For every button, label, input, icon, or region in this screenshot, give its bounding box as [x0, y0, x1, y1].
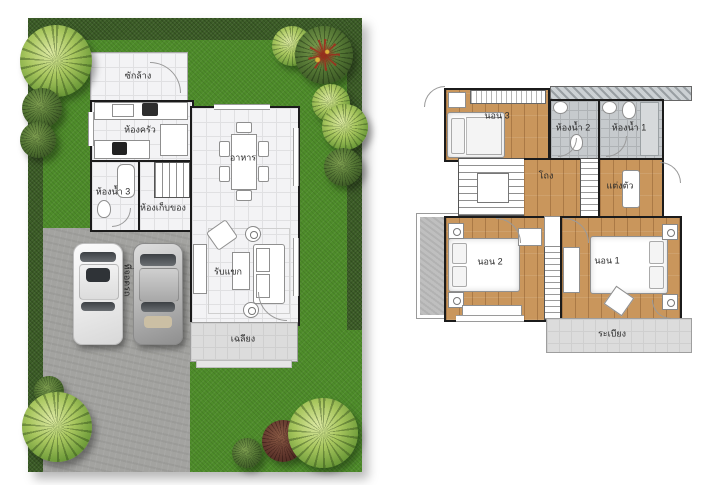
label-laundry: ซักล้าง: [125, 72, 152, 81]
sink: [602, 101, 617, 114]
porch-step: [196, 360, 292, 368]
label-storage: ห้องเก็บของ: [140, 204, 186, 213]
label-balcony: ระเบียง: [598, 330, 626, 339]
label-bed1: นอน 1: [594, 257, 619, 266]
sink: [553, 101, 568, 114]
side-table: [448, 92, 466, 108]
refrigerator: [160, 124, 188, 156]
staircase: [154, 162, 190, 198]
tv-cabinet: [193, 244, 207, 294]
door-arc: [424, 86, 445, 107]
chair: [236, 190, 252, 201]
chair: [219, 141, 230, 157]
tree: [324, 148, 362, 186]
tree: [322, 104, 368, 150]
label-hall: โถง: [539, 172, 554, 181]
label-bath2: ห้องน้ำ 2: [556, 124, 590, 133]
sofa-cushion: [256, 248, 270, 272]
toilet: [622, 101, 636, 119]
linen-closet: [580, 158, 600, 218]
window: [293, 128, 299, 186]
label-dining: อาหาร: [230, 154, 256, 163]
lamp-table: [448, 223, 464, 239]
window: [88, 112, 94, 146]
cabinet: [518, 228, 542, 246]
label-porch: เฉลียง: [231, 335, 255, 344]
kitchen-sink: [112, 104, 134, 117]
flame-tree: [295, 26, 353, 84]
tree: [22, 392, 92, 462]
staircase: [458, 158, 526, 216]
kitchen-cooktop: [112, 142, 127, 155]
second-floor-plan: นอน 3 ห้องน้ำ 2 ห้องน้ำ 1 โถง แต่งตัว นอ…: [400, 0, 713, 485]
door-arc: [660, 162, 681, 183]
lamp-table: [662, 224, 678, 240]
tree: [20, 25, 92, 97]
dresser: [563, 247, 580, 293]
car-white: [73, 243, 123, 345]
toilet: [97, 200, 111, 218]
kitchen-counter: [94, 102, 188, 120]
kitchen-stove: [142, 103, 158, 116]
chair: [236, 122, 252, 133]
label-bed2: นอน 2: [477, 258, 502, 267]
window: [293, 238, 299, 296]
side-table: [243, 302, 259, 318]
car-silver: [133, 243, 183, 345]
label-bath3: ห้องน้ำ 3: [96, 188, 130, 197]
chair: [258, 166, 269, 182]
bush: [232, 438, 262, 468]
wardrobe: [470, 90, 546, 104]
chair: [219, 166, 230, 182]
tree: [288, 398, 358, 468]
window: [214, 104, 270, 110]
label-bed3: นอน 3: [484, 112, 509, 121]
floor-plan-image: ซักล้าง ห้องครัว ห้องน้ำ 3 ห้องเก็บของ อ…: [0, 0, 713, 485]
room-hall: [524, 158, 582, 220]
label-bath1: ห้องน้ำ 1: [612, 124, 646, 133]
label-living: รับแขก: [214, 268, 242, 277]
chair: [258, 141, 269, 157]
site-plan: ซักล้าง ห้องครัว ห้องน้ำ 3 ห้องเก็บของ อ…: [0, 0, 400, 485]
bush: [20, 122, 56, 158]
label-kitchen: ห้องครัว: [124, 126, 156, 135]
label-dressing: แต่งตัว: [607, 182, 634, 191]
side-table: [245, 226, 261, 242]
label-parking: ที่จอดรถ: [123, 264, 132, 297]
window: [456, 315, 524, 322]
